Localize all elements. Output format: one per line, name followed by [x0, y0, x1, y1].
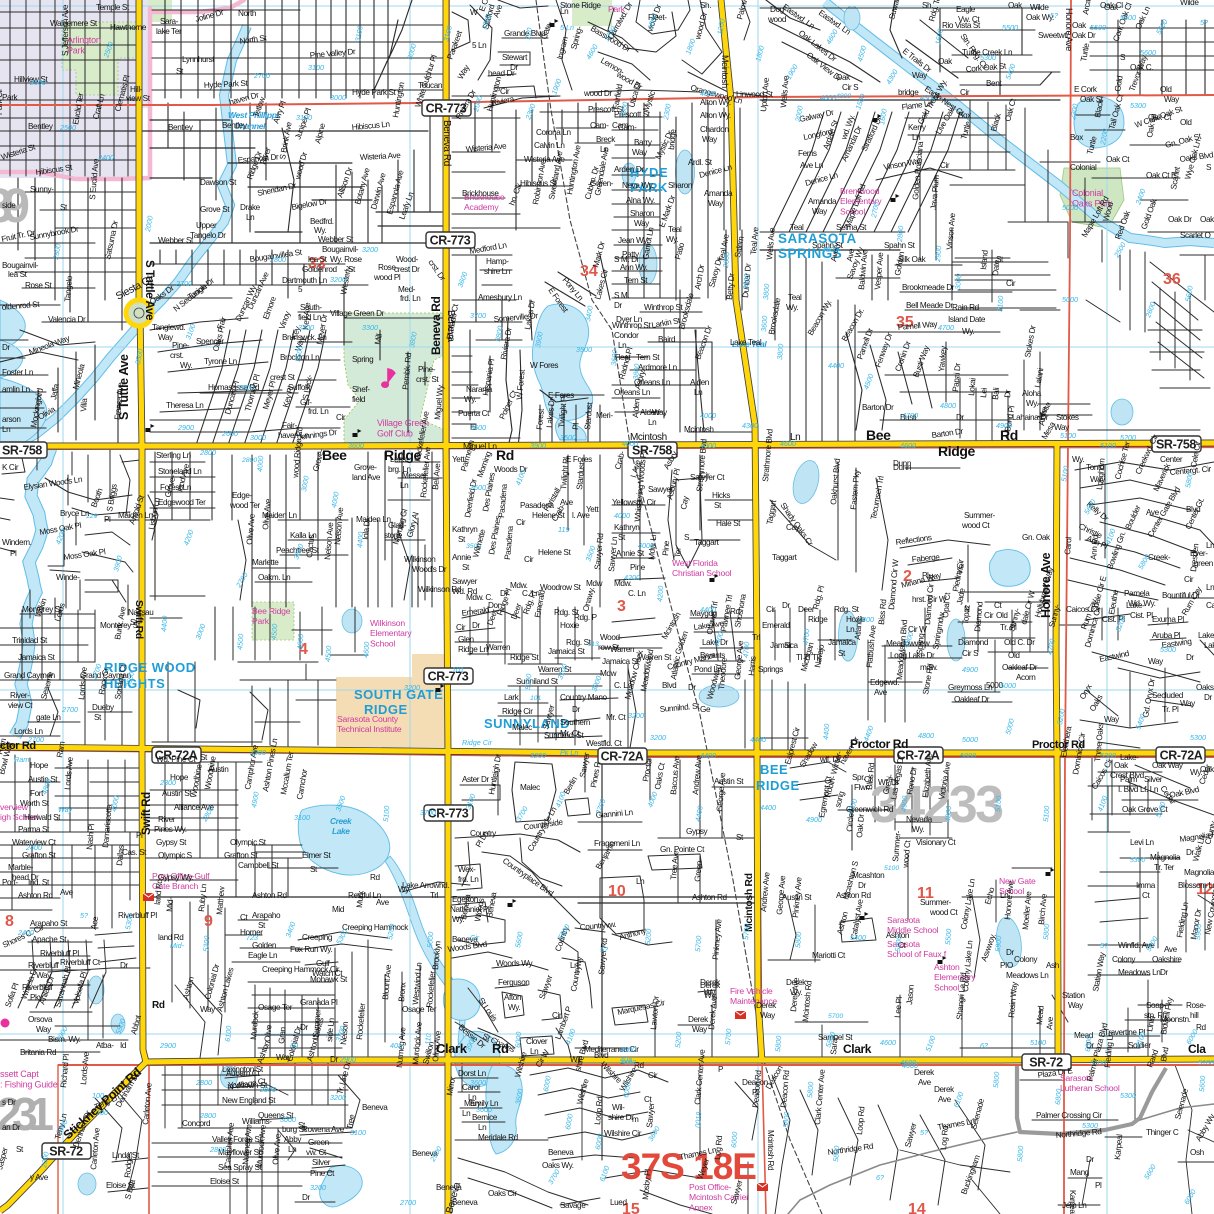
svg-text:Silver: Silver	[1144, 775, 1163, 784]
svg-text:Ln: Ln	[478, 1123, 487, 1132]
svg-text:Rain Rd: Rain Rd	[952, 303, 980, 312]
svg-text:723: 723	[246, 933, 258, 942]
svg-text:St: St	[462, 563, 470, 572]
svg-text:Sarasota: Sarasota	[887, 915, 920, 925]
svg-text:West Florida: West Florida	[672, 558, 718, 568]
svg-text:3000: 3000	[250, 433, 266, 442]
svg-text:3700: 3700	[470, 311, 486, 320]
svg-text:4400: 4400	[700, 605, 716, 614]
svg-text:Britania Rd: Britania Rd	[20, 1048, 57, 1057]
svg-text:Colonial: Colonial	[1070, 163, 1097, 172]
svg-text:Stewart: Stewart	[502, 53, 528, 62]
svg-text:4900: 4900	[806, 815, 822, 824]
svg-text:3600: 3600	[470, 1078, 486, 1087]
svg-text:C. Ln: C. Ln	[628, 589, 646, 598]
svg-text:Sunny-: Sunny-	[30, 185, 54, 194]
svg-text:St: St	[838, 649, 846, 658]
svg-text:Derek: Derek	[756, 1001, 777, 1010]
svg-text:4400: 4400	[760, 803, 776, 812]
svg-text:5300: 5300	[1082, 1121, 1098, 1130]
svg-text:Warren: Warren	[610, 645, 635, 654]
svg-text:Cir: Cir	[1006, 279, 1016, 288]
svg-text:Bronx: Bronx	[397, 982, 408, 1002]
svg-text:Wilshire Cir: Wilshire Cir	[604, 1129, 642, 1138]
svg-text:Helene St: Helene St	[538, 548, 571, 557]
svg-text:Savage: Savage	[560, 1201, 586, 1210]
svg-text:4800: 4800	[918, 731, 934, 740]
svg-text:Grove-: Grove-	[354, 463, 377, 472]
svg-text:5100: 5100	[884, 865, 899, 872]
svg-text:St: St	[736, 833, 744, 842]
svg-text:Annie: Annie	[452, 553, 472, 562]
svg-text:Corona Ln: Corona Ln	[536, 128, 571, 137]
svg-text:Wil-: Wil-	[612, 1103, 625, 1112]
svg-text:Lake-: Lake-	[1198, 631, 1214, 640]
svg-text:Ardl. St: Ardl. St	[688, 158, 713, 167]
svg-text:Cam-: Cam-	[612, 121, 631, 130]
svg-text:4900: 4900	[822, 245, 838, 254]
svg-text:Wy.: Wy.	[464, 395, 476, 404]
svg-text:land Ave: land Ave	[352, 473, 381, 482]
svg-text:9: 9	[204, 913, 213, 930]
svg-text:Hawthorne: Hawthorne	[110, 23, 147, 32]
svg-text:Way: Way	[36, 1025, 52, 1034]
svg-text:5000: 5000	[960, 751, 976, 760]
svg-text:3800: 3800	[761, 283, 771, 300]
svg-text:Diamond: Diamond	[958, 638, 989, 647]
svg-text:Alton Wy.: Alton Wy.	[700, 111, 731, 120]
svg-text:Orsova: Orsova	[28, 1015, 53, 1024]
svg-text:view Ct: view Ct	[8, 701, 33, 710]
svg-text:Stone Ridge: Stone Ridge	[560, 1, 602, 10]
svg-text:Wex-: Wex-	[458, 865, 476, 874]
svg-text:Dr: Dr	[1186, 653, 1195, 662]
svg-text:St: St	[176, 67, 184, 76]
svg-text:Abby: Abby	[284, 1135, 302, 1144]
svg-text:Aster Dr: Aster Dr	[462, 775, 489, 784]
svg-text:St: St	[310, 865, 318, 874]
svg-text:Ashton Rd: Ashton Rd	[836, 891, 871, 900]
svg-text:Dartmouth Ln: Dartmouth Ln	[282, 276, 328, 285]
svg-text:Swift Rd: Swift Rd	[141, 792, 153, 835]
svg-text:Fox Run Wy.: Fox Run Wy.	[290, 945, 332, 954]
svg-text:2700: 2700	[61, 705, 78, 714]
svg-text:Rd: Rd	[1196, 1023, 1207, 1032]
svg-text:Teal: Teal	[668, 225, 682, 234]
svg-text:6000: 6000	[513, 1031, 523, 1048]
svg-text:2700: 2700	[27, 735, 44, 744]
svg-text:Dawson St: Dawson St	[200, 178, 237, 187]
svg-text:Bougainvil-: Bougainvil-	[322, 245, 359, 254]
svg-text:Way: Way	[812, 207, 828, 216]
svg-text:5100: 5100	[523, 673, 533, 690]
svg-text:Dunn: Dunn	[893, 459, 912, 468]
svg-text:Calvin Ln: Calvin Ln	[534, 141, 565, 150]
svg-text:4600: 4600	[295, 633, 305, 650]
svg-text:Malec: Malec	[520, 783, 540, 792]
svg-text:Winde-: Winde-	[56, 573, 80, 582]
svg-text:Wd. Pine Ct: Wd. Pine Ct	[156, 755, 196, 764]
svg-text:Wy.: Wy.	[1026, 399, 1038, 408]
svg-text:Lokai: Lokai	[967, 377, 978, 396]
svg-text:Oaks Wy.: Oaks Wy.	[542, 1161, 574, 1170]
svg-text:Green-: Green-	[308, 1138, 332, 1147]
svg-text:Lake Teal: Lake Teal	[730, 338, 762, 347]
svg-text:Way: Way	[1068, 1001, 1084, 1010]
svg-text:Tr. Ter: Tr. Ter	[1154, 863, 1175, 872]
svg-text:Beneva Rd: Beneva Rd	[441, 120, 452, 166]
svg-text:4400: 4400	[750, 735, 766, 744]
svg-text:Pl: Pl	[10, 549, 17, 558]
svg-text:Dr: Dr	[120, 961, 129, 970]
svg-text:3500: 3500	[560, 433, 576, 442]
svg-text:Bentley: Bentley	[222, 121, 248, 130]
svg-text:Imma: Imma	[1136, 881, 1156, 890]
svg-text:view St: view St	[126, 94, 151, 103]
svg-text:Olympic St: Olympic St	[230, 838, 267, 847]
svg-text:Edge-: Edge-	[232, 491, 253, 500]
svg-text:5000: 5000	[962, 735, 978, 744]
svg-text:Box: Box	[958, 111, 971, 120]
svg-text:100: 100	[96, 1108, 108, 1117]
svg-text:Aloha: Aloha	[1022, 389, 1042, 398]
svg-text:Dr: Dr	[1003, 389, 1013, 398]
svg-text:2800: 2800	[895, 225, 905, 243]
svg-text:Sara-: Sara-	[160, 17, 179, 26]
svg-text:Lark: Lark	[504, 693, 520, 702]
svg-text:231: 231	[0, 1088, 54, 1140]
svg-text:side: side	[2, 201, 16, 210]
svg-text:Wood-: Wood-	[396, 255, 419, 264]
svg-text:Ct: Ct	[644, 1095, 653, 1104]
svg-text:Box: Box	[1070, 133, 1083, 142]
svg-text:Ln: Ln	[462, 1109, 471, 1118]
svg-text:Beneva: Beneva	[548, 1148, 574, 1157]
svg-text:Mang: Mang	[1070, 1168, 1090, 1177]
svg-text:5100: 5100	[993, 795, 1003, 812]
svg-text:Post Office-: Post Office-	[689, 1182, 732, 1192]
svg-text:Annie St: Annie St	[616, 549, 645, 558]
svg-text:Villa: Villa	[79, 397, 89, 412]
svg-text:Meadows Ln: Meadows Ln	[1118, 968, 1161, 977]
svg-text:5300: 5300	[1130, 101, 1146, 110]
svg-text:Rdg. St: Rdg. St	[834, 605, 860, 614]
svg-text:Dr: Dr	[858, 881, 867, 890]
svg-text:Hicks: Hicks	[712, 491, 730, 500]
svg-text:green Dr: green Dr	[1194, 559, 1214, 568]
svg-text:3200: 3200	[330, 275, 346, 284]
svg-text:Mcintosh: Mcintosh	[720, 55, 730, 88]
svg-text:Green: Green	[693, 860, 704, 882]
svg-text:Pk Ln: Pk Ln	[560, 748, 578, 757]
svg-text:SR-758: SR-758	[1156, 438, 1196, 452]
svg-text:Dr: Dr	[688, 683, 697, 692]
svg-text:St: St	[458, 535, 466, 544]
svg-text:Gn. Pointe Ct: Gn. Pointe Ct	[660, 845, 705, 854]
svg-text:an Dr: an Dr	[2, 1123, 21, 1132]
svg-text:Yett: Yett	[586, 505, 599, 514]
svg-text:Old: Old	[1160, 85, 1172, 94]
svg-text:Dueby: Dueby	[92, 703, 115, 712]
svg-text:Mcintosh: Mcintosh	[684, 425, 714, 434]
svg-text:Ln: Ln	[912, 133, 921, 142]
svg-text:5600: 5600	[1140, 48, 1156, 57]
svg-text:Webber St: Webber St	[318, 235, 354, 244]
svg-text:Mcintosh Rd: Mcintosh Rd	[743, 873, 755, 932]
svg-text:5200: 5200	[673, 1031, 683, 1048]
svg-text:Wy.: Wy.	[786, 303, 798, 312]
svg-text:4000: 4000	[614, 511, 630, 520]
svg-text:3200: 3200	[628, 711, 644, 720]
svg-text:wood Ct: wood Ct	[929, 908, 958, 917]
svg-text:Eagle Ln: Eagle Ln	[248, 951, 278, 960]
svg-text:CR-773: CR-773	[430, 234, 471, 248]
svg-text:Rose St: Rose St	[25, 281, 52, 290]
svg-text:K Cir: K Cir	[2, 463, 19, 472]
svg-text:Dr: Dr	[1160, 968, 1169, 977]
svg-text:St: St	[130, 618, 138, 627]
svg-text:Meadows Ln: Meadows Ln	[1006, 971, 1049, 980]
svg-text:Stokes: Stokes	[1056, 413, 1079, 422]
svg-text:3600: 3600	[759, 315, 769, 332]
svg-text:Wood-: Wood-	[600, 633, 623, 642]
svg-text:Tangelo Dr: Tangelo Dr	[190, 231, 226, 240]
svg-text:Cir: Cir	[766, 605, 776, 614]
svg-text:4900: 4900	[899, 795, 909, 812]
svg-text:10: 10	[608, 883, 626, 900]
svg-text:Station: Station	[1062, 991, 1086, 1000]
svg-text:Cir S: Cir S	[842, 83, 859, 92]
svg-text:Sweetwtr. Oak Dr: Sweetwtr. Oak Dr	[1038, 31, 1096, 40]
svg-text:Dog-: Dog-	[770, 5, 787, 14]
svg-text:Park: Park	[2, 93, 19, 102]
svg-text:Foster Ln: Foster Ln	[2, 368, 34, 377]
svg-text:Ct: Ct	[994, 601, 1003, 610]
svg-text:5100: 5100	[1198, 1058, 1214, 1067]
svg-text:Ash: Ash	[1046, 961, 1060, 970]
svg-text:4400: 4400	[700, 751, 716, 760]
svg-text:wood Pl: wood Pl	[373, 273, 401, 282]
svg-text:4500: 4500	[323, 645, 333, 662]
svg-text:Upper: Upper	[196, 221, 217, 230]
svg-text:4000: 4000	[700, 411, 716, 420]
svg-text:Ashton Rd: Ashton Rd	[18, 891, 53, 900]
svg-text:Oaks: Oaks	[1196, 683, 1214, 692]
svg-text:Ave Ln: Ave Ln	[800, 161, 824, 170]
svg-text:Kathryn: Kathryn	[452, 525, 478, 534]
svg-text:5200: 5200	[643, 928, 653, 945]
svg-text:Old: Old	[1180, 118, 1192, 127]
svg-text:Puerta Ct: Puerta Ct	[458, 409, 490, 418]
svg-text:Ave: Ave	[1045, 1016, 1055, 1030]
svg-text:Atba-: Atba-	[96, 1041, 114, 1050]
svg-text:Mid-: Mid-	[165, 896, 175, 912]
svg-text:Pines Wy.: Pines Wy.	[154, 825, 187, 834]
svg-text:Derek: Derek	[700, 981, 721, 990]
svg-text:y Ave: y Ave	[30, 1173, 49, 1182]
svg-text:5?: 5?	[80, 911, 88, 920]
svg-text:5300: 5300	[1100, 751, 1116, 760]
svg-text:frd. Ln: frd. Ln	[400, 294, 421, 303]
svg-text:5000: 5000	[1000, 681, 1016, 690]
svg-text:Marlette: Marlette	[252, 558, 279, 567]
svg-text:5000: 5000	[1062, 295, 1078, 304]
svg-text:5300: 5300	[1190, 733, 1206, 742]
svg-text:Woods Wy.: Woods Wy.	[496, 959, 534, 968]
svg-text:bridge: bridge	[898, 88, 919, 97]
svg-text:Bent: Bent	[986, 79, 1002, 88]
svg-text:Glen: Glen	[458, 635, 475, 644]
svg-text:3500: 3500	[576, 345, 592, 354]
svg-text:Nassau: Nassau	[128, 608, 154, 617]
svg-text:Ave: Ave	[918, 1078, 932, 1087]
svg-text:Auburn Ct: Auburn Ct	[226, 1069, 260, 1078]
svg-text:St: St	[60, 203, 68, 212]
svg-text:Mid: Mid	[332, 905, 345, 914]
svg-text:2800: 2800	[269, 255, 286, 264]
svg-text:4000: 4000	[255, 455, 265, 472]
svg-text:3600: 3600	[348, 441, 364, 450]
svg-text:3900: 3900	[530, 441, 546, 450]
svg-text:4600: 4600	[620, 1045, 636, 1054]
svg-text:5600: 5600	[1197, 1075, 1207, 1092]
svg-text:PI: PI	[571, 422, 581, 430]
svg-text:Oak Way: Oak Way	[1152, 761, 1184, 770]
svg-text:4000: 4000	[622, 439, 638, 448]
svg-text:5500: 5500	[1002, 23, 1018, 32]
svg-text:60: 60	[290, 1041, 298, 1050]
svg-text:36: 36	[1163, 271, 1181, 288]
svg-text:5700: 5700	[693, 935, 703, 952]
svg-text:4900: 4900	[962, 665, 978, 674]
svg-text:5?: 5?	[1100, 941, 1108, 950]
svg-text:4600: 4600	[620, 1058, 636, 1067]
svg-text:5100: 5100	[1041, 805, 1051, 822]
svg-text:Meri-: Meri-	[596, 411, 613, 420]
svg-text:Tanglewd.: Tanglewd.	[152, 323, 185, 332]
svg-text:5800: 5800	[831, 1145, 841, 1162]
svg-text:Edgewood Ter: Edgewood Ter	[158, 498, 206, 507]
svg-text:Oakshire: Oakshire	[1152, 955, 1182, 964]
svg-text:Wy.: Wy.	[180, 361, 192, 370]
svg-text:Way: Way	[692, 1025, 708, 1034]
svg-text:Theresa Ln: Theresa Ln	[166, 401, 204, 410]
svg-text:5900: 5900	[993, 935, 1003, 952]
svg-text:Thinger C: Thinger C	[1146, 1128, 1179, 1137]
svg-text:Oakm. Ln: Oakm. Ln	[258, 573, 291, 582]
svg-text:brg. Ln: brg. Ln	[388, 465, 412, 474]
svg-text:Hyde Park St: Hyde Park St	[352, 88, 397, 97]
svg-text:shire Dr: shire Dr	[608, 1113, 634, 1122]
svg-text:4400: 4400	[159, 615, 169, 632]
svg-text:4300: 4300	[742, 421, 758, 430]
svg-text:Arden Dr: Arden Dr	[614, 165, 644, 174]
svg-text:Hope: Hope	[30, 761, 49, 770]
svg-text:5000: 5000	[425, 931, 435, 948]
svg-text:St: St	[784, 641, 792, 650]
svg-text:Topaz: Topaz	[961, 604, 972, 625]
svg-text:Oak: Oak	[1072, 21, 1087, 30]
svg-text:Way: Way	[912, 71, 928, 80]
svg-text:Riverbluff Pl: Riverbluff Pl	[40, 949, 79, 958]
svg-text:Alden: Alden	[631, 398, 642, 418]
svg-text:Breck: Breck	[596, 135, 616, 144]
svg-text:Baird: Baird	[658, 335, 676, 344]
svg-text:5800: 5800	[991, 1071, 1001, 1088]
svg-text:Rd: Rd	[496, 447, 514, 463]
svg-text:wood Ct: wood Ct	[961, 521, 990, 530]
svg-text:Pine Ct: Pine Ct	[310, 1169, 335, 1178]
svg-text:4900: 4900	[996, 421, 1012, 430]
svg-text:Blvd: Blvd	[662, 681, 677, 690]
svg-text:Clark: Clark	[843, 1042, 872, 1056]
svg-text:Park: Park	[252, 616, 270, 626]
svg-text:Ann Wy.: Ann Wy.	[620, 263, 648, 272]
svg-text:Orleans Ln: Orleans Ln	[614, 388, 651, 397]
svg-text:Grafton St: Grafton St	[22, 851, 56, 860]
svg-text:Sharon: Sharon	[668, 181, 693, 190]
svg-text:Oaks Cir: Oaks Cir	[488, 1189, 517, 1198]
svg-text:Valley Forge St: Valley Forge St	[212, 1135, 262, 1144]
svg-text:Golf Club: Golf Club	[377, 429, 413, 439]
svg-text:Sarasota County: Sarasota County	[337, 714, 399, 724]
svg-text:5900: 5900	[1193, 923, 1203, 940]
svg-text:2800: 2800	[199, 448, 216, 457]
svg-text:frd. Ln: frd. Ln	[458, 875, 479, 884]
svg-text:Lake-: Lake-	[1120, 753, 1139, 762]
svg-text:Springs: Springs	[758, 665, 783, 674]
svg-text:Christian School: Christian School	[672, 568, 732, 578]
svg-text:Park Cir: Park Cir	[0, 88, 4, 115]
svg-text:6100: 6100	[223, 1025, 233, 1042]
svg-text:Tyrone Ln: Tyrone Ln	[204, 357, 238, 366]
svg-text:2500: 2500	[59, 123, 76, 132]
svg-text:Hoxie: Hoxie	[560, 621, 580, 630]
svg-text:3200: 3200	[310, 1183, 326, 1192]
svg-text:5800: 5800	[805, 1081, 815, 1098]
svg-text:Date: Date	[991, 259, 1001, 276]
svg-text:2900: 2900	[177, 423, 194, 432]
svg-text:4600: 4600	[900, 1058, 916, 1067]
svg-text:Ridge: Ridge	[808, 615, 828, 624]
svg-text:Ln: Ln	[400, 481, 409, 490]
svg-text:Marble-: Marble-	[8, 863, 34, 872]
svg-text:Chardon: Chardon	[700, 125, 729, 134]
svg-text:4600: 4600	[880, 1038, 896, 1047]
svg-text:Wy.: Wy.	[962, 327, 974, 336]
svg-text:Dr: Dr	[956, 413, 965, 422]
svg-text:Pl: Pl	[136, 831, 143, 840]
svg-text:Grafton St: Grafton St	[224, 851, 258, 860]
svg-text:Way: Way	[634, 219, 650, 228]
svg-text:s Dr: s Dr	[2, 1098, 16, 1107]
svg-text:: Fishing Guide: : Fishing Guide	[0, 1080, 58, 1090]
svg-text:Sh.: Sh.	[700, 1, 711, 10]
svg-text:Clover: Clover	[526, 1037, 548, 1046]
svg-text:Apache St: Apache St	[32, 935, 67, 944]
svg-text:Concord: Concord	[182, 1119, 211, 1128]
svg-text:2300: 2300	[721, 251, 731, 269]
svg-text:Valencia Dr: Valencia Dr	[48, 315, 86, 324]
svg-text:5?: 5?	[920, 1128, 928, 1137]
svg-text:Cir: Cir	[516, 518, 526, 527]
svg-text:Alden: Alden	[690, 378, 710, 387]
svg-text:Oak Ct: Oak Ct	[1106, 155, 1130, 164]
svg-text:5100: 5100	[1090, 1058, 1106, 1067]
svg-text:Oak: Oak	[836, 73, 851, 82]
svg-text:RIDGE: RIDGE	[756, 778, 800, 793]
svg-text:2800: 2800	[199, 1111, 216, 1120]
